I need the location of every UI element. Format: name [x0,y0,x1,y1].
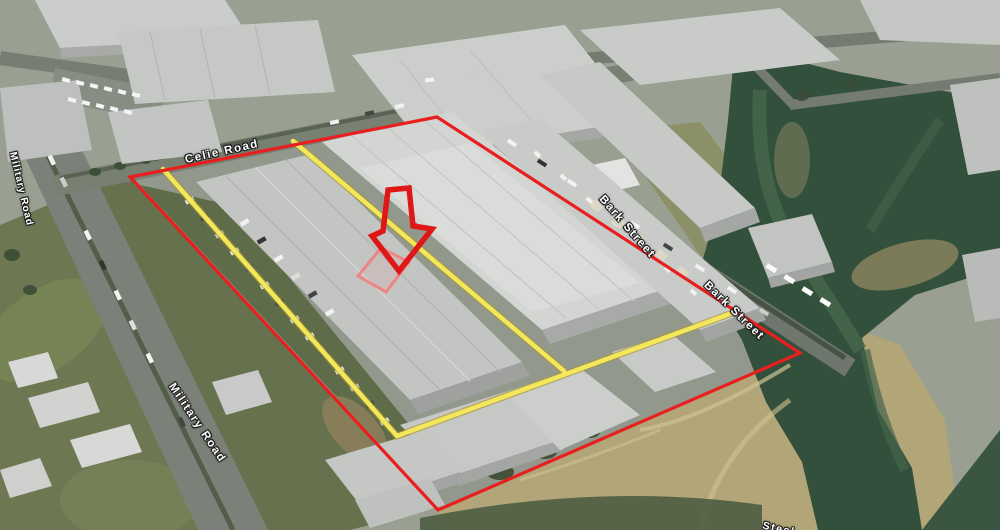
aerial-map-view[interactable]: Celie Road Military Road Military Road B… [0,0,1000,530]
satellite-imagery [0,0,1000,530]
